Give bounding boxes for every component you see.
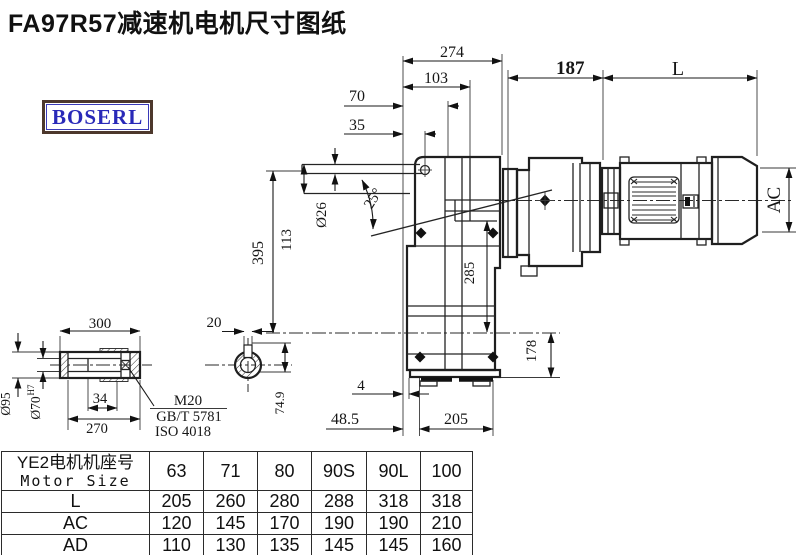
table-row: AD 110 130 135 145 145 160 xyxy=(2,535,473,555)
coupling-adapter xyxy=(503,158,600,276)
label-gbt5781: GB/T 5781 xyxy=(156,409,221,425)
table-cell: 318 xyxy=(421,491,473,513)
dim-48-5: 48.5 xyxy=(331,411,359,428)
dim-178: 178 xyxy=(524,340,540,363)
table-cell: 160 xyxy=(421,535,473,555)
table-size-header: 80 xyxy=(258,452,312,491)
table-cell: 145 xyxy=(367,535,421,555)
table-cell: 288 xyxy=(312,491,367,513)
label-m20: M20 xyxy=(174,393,202,409)
dim-o70-tolerance: H7 xyxy=(26,384,36,395)
table-cell: 280 xyxy=(258,491,312,513)
dim-35: 35 xyxy=(349,117,365,134)
dim-34: 34 xyxy=(93,391,108,407)
dim-274: 274 xyxy=(440,44,464,61)
table-cell: 190 xyxy=(312,513,367,535)
table-size-header: 90S xyxy=(312,452,367,491)
dim-270: 270 xyxy=(86,421,108,437)
table-cell: 318 xyxy=(367,491,421,513)
row-label: AD xyxy=(2,535,150,555)
page-title: FA97R57减速机电机尺寸图纸 xyxy=(8,4,347,40)
table-cell: 145 xyxy=(204,513,258,535)
dim-o95: Ø95 xyxy=(0,392,13,415)
table-cell: 145 xyxy=(312,535,367,555)
dim-4: 4 xyxy=(357,378,365,394)
table-cell: 170 xyxy=(258,513,312,535)
table-size-header: 71 xyxy=(204,452,258,491)
dim-300: 300 xyxy=(89,316,112,332)
dim-103: 103 xyxy=(424,70,448,87)
row-label: AC xyxy=(2,513,150,535)
motor-size-table: YE2电机机座号 Motor Size 63 71 80 90S 90L 100… xyxy=(1,451,473,555)
brand-logo-text: BOSERL xyxy=(52,105,143,129)
table-row: AC 120 145 170 190 190 210 xyxy=(2,513,473,535)
table-cell: 110 xyxy=(150,535,204,555)
brand-logo: BOSERL xyxy=(42,100,153,134)
table-cell: 210 xyxy=(421,513,473,535)
table-header-row: YE2电机机座号 Motor Size 63 71 80 90S 90L 100 xyxy=(2,452,473,491)
dim-113: 113 xyxy=(279,229,295,251)
table-row: L 205 260 280 288 318 318 xyxy=(2,491,473,513)
row-label: L xyxy=(2,491,150,513)
table-cell: 205 xyxy=(150,491,204,513)
dim-20: 20 xyxy=(207,315,222,331)
dim-187: 187 xyxy=(556,58,585,79)
gearbox-housing xyxy=(407,157,500,386)
dim-25deg: 25° xyxy=(361,186,386,212)
table-header-motor-size: YE2电机机座号 Motor Size xyxy=(2,452,150,491)
table-cell: 190 xyxy=(367,513,421,535)
dim-o70: Ø70 xyxy=(28,396,43,419)
table-size-header: 63 xyxy=(150,452,204,491)
dim-AC: AC xyxy=(764,187,785,213)
dim-70: 70 xyxy=(349,88,365,105)
dim-L: L xyxy=(672,58,684,80)
dim-205: 205 xyxy=(444,411,468,428)
table-size-header: 100 xyxy=(421,452,473,491)
dim-74-9: 74.9 xyxy=(272,392,287,415)
page: 274 103 70 35 187 L AC 395 113 Ø26 25° 2… xyxy=(0,0,800,555)
torque-arm xyxy=(302,163,552,236)
table-cell: 120 xyxy=(150,513,204,535)
dimension-drawing: 274 103 70 35 187 L AC 395 113 Ø26 25° 2… xyxy=(0,0,800,452)
table-cell: 260 xyxy=(204,491,258,513)
table-size-header: 90L xyxy=(367,452,421,491)
label-iso4018: ISO 4018 xyxy=(155,424,211,440)
keyway xyxy=(244,345,252,358)
table-cell: 130 xyxy=(204,535,258,555)
table-cell: 135 xyxy=(258,535,312,555)
dim-285: 285 xyxy=(462,262,478,285)
dim-o26: Ø26 xyxy=(314,202,330,228)
dim-395: 395 xyxy=(250,241,267,265)
